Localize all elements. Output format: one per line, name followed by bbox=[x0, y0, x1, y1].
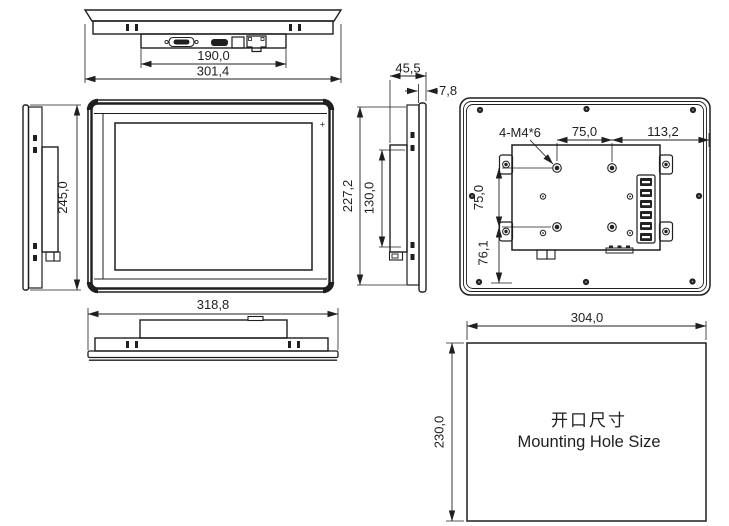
io-strip bbox=[637, 175, 655, 243]
side-flange bbox=[419, 103, 426, 292]
back-view: 4-M4*6 75,0 113,2 75,0 76,1 bbox=[460, 98, 710, 295]
hole-height-label: 230,0 bbox=[432, 416, 447, 449]
bottom-connector-icon bbox=[390, 252, 403, 260]
lower-offset-label: 76,1 bbox=[476, 240, 491, 265]
front-screen bbox=[115, 123, 312, 270]
side-rear-box bbox=[390, 145, 407, 252]
small-hole bbox=[540, 194, 632, 236]
top-overall-width-label: 301,4 bbox=[197, 64, 230, 79]
side-bezel-label: 7,8 bbox=[439, 83, 457, 98]
mounting-clip-icon bbox=[126, 24, 301, 31]
hole-width-label: 304,0 bbox=[571, 310, 604, 325]
power-connector-icon bbox=[537, 250, 555, 259]
bottom-rear-box bbox=[140, 320, 287, 338]
mounting-clip-icon bbox=[411, 132, 415, 260]
top-view-flange bbox=[85, 10, 341, 21]
left-side-height-label: 245,0 bbox=[55, 181, 70, 214]
side-view: 45,5 7,8 227,2 130,0 bbox=[340, 61, 457, 293]
vesa-width-label: 75,0 bbox=[572, 124, 597, 139]
side-body-height-label: 227,2 bbox=[340, 180, 355, 213]
back-rear-box bbox=[512, 145, 660, 250]
vesa-hole bbox=[553, 164, 617, 232]
side-extension-lines bbox=[357, 72, 426, 285]
front-outer-frame bbox=[88, 100, 333, 292]
mounting-hole-title-zh: 开口尺寸 bbox=[551, 411, 627, 431]
left-side-flange bbox=[23, 105, 29, 290]
side-rear-box-height-label: 130,0 bbox=[362, 182, 377, 215]
top-view: 190,0 301,4 bbox=[85, 10, 341, 83]
lan-connector-icon bbox=[247, 36, 266, 52]
edge-offset-label: 113,2 bbox=[647, 124, 679, 139]
panel-pc-dimensional-drawing: 190,0 301,4 245,0 bbox=[0, 0, 729, 526]
mounting-clip-icon bbox=[33, 135, 37, 261]
mounting-hole-view: 304,0 230,0 开口尺寸 Mounting Hole Size bbox=[432, 310, 707, 521]
mounting-hole-title-en: Mounting Hole Size bbox=[517, 433, 660, 451]
thread-callout-leader bbox=[530, 140, 553, 164]
usb-connector-icon bbox=[232, 37, 244, 48]
mounting-clip-icon bbox=[126, 341, 300, 348]
front-view: + 318,8 bbox=[88, 100, 338, 350]
bottom-flange bbox=[88, 351, 338, 358]
hdmi-connector-icon bbox=[211, 39, 228, 46]
front-inner-frame bbox=[92, 104, 330, 289]
vesa-height-label: 75,0 bbox=[471, 185, 486, 210]
top-io-width-label: 190,0 bbox=[197, 48, 230, 63]
bottom-box-bump bbox=[248, 317, 263, 321]
mounting-hole-rect bbox=[467, 343, 706, 521]
front-bezel-lines bbox=[94, 114, 327, 280]
power-led-mark: + bbox=[320, 120, 325, 130]
front-width-label: 318,8 bbox=[197, 297, 230, 312]
vga-connector-icon bbox=[165, 38, 198, 47]
back-extension-lines bbox=[491, 133, 709, 283]
bottom-view bbox=[88, 317, 338, 361]
bottom-body bbox=[95, 338, 328, 351]
thread-callout-label: 4-M4*6 bbox=[499, 125, 541, 140]
left-side-view: 245,0 bbox=[23, 105, 81, 290]
drawing-svg: 190,0 301,4 245,0 bbox=[0, 0, 729, 526]
side-depth-label: 45,5 bbox=[395, 61, 420, 76]
corner-cap-icon bbox=[89, 101, 331, 290]
bottom-connector-icon bbox=[46, 252, 60, 261]
